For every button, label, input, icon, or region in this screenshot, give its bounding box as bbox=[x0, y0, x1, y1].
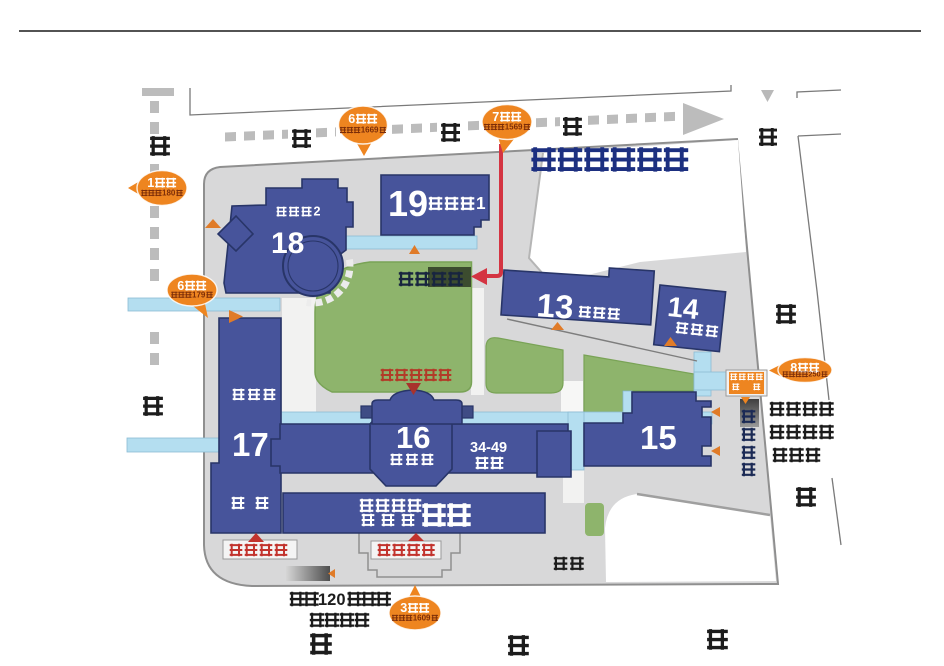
svg-text:6: 6 bbox=[348, 112, 355, 126]
svg-text:3: 3 bbox=[400, 601, 407, 615]
svg-text:1609: 1609 bbox=[413, 614, 431, 623]
svg-text:179: 179 bbox=[192, 290, 206, 299]
svg-text:1: 1 bbox=[476, 193, 486, 213]
svg-text:19: 19 bbox=[388, 183, 428, 224]
svg-text:16: 16 bbox=[396, 420, 430, 455]
svg-text:120: 120 bbox=[318, 591, 346, 609]
svg-text:17: 17 bbox=[232, 426, 269, 463]
svg-text:1669: 1669 bbox=[361, 126, 379, 135]
svg-text:14: 14 bbox=[666, 291, 701, 325]
svg-text:13: 13 bbox=[536, 286, 575, 325]
svg-text:15: 15 bbox=[640, 419, 677, 456]
svg-text:250: 250 bbox=[808, 370, 821, 379]
svg-text:1: 1 bbox=[147, 176, 154, 190]
svg-text:34-49: 34-49 bbox=[470, 440, 507, 456]
svg-text:7: 7 bbox=[492, 110, 499, 124]
svg-text:6: 6 bbox=[177, 279, 184, 293]
svg-text:18: 18 bbox=[271, 227, 304, 260]
svg-text:2: 2 bbox=[314, 205, 321, 219]
svg-text:1569: 1569 bbox=[505, 123, 523, 132]
svg-text:180: 180 bbox=[162, 189, 176, 198]
